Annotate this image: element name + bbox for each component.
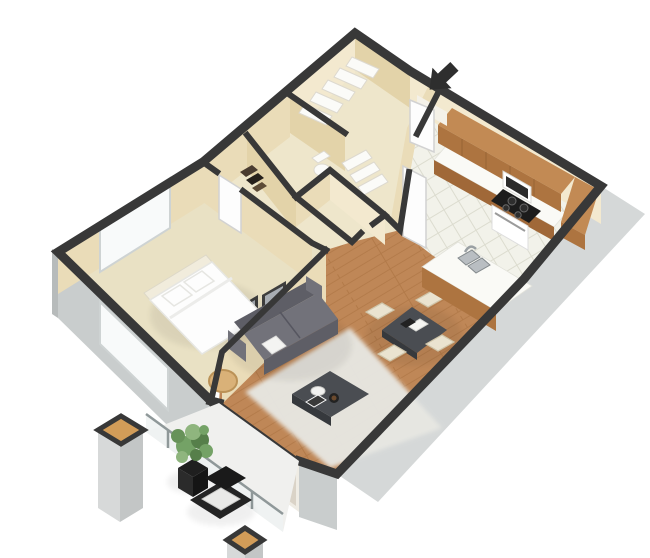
plant-foliage [171,424,213,463]
floorplan-stage: 3D isometric cutaway floor plan of a one… [0,0,650,558]
table-bowl [311,387,325,396]
floorplan-3d-render: 3D isometric cutaway floor plan of a one… [0,0,650,558]
west-corner-post [52,249,58,318]
balcony-pillar [227,528,263,558]
balcony-pillar [98,416,144,522]
table-plate-item [332,396,337,401]
